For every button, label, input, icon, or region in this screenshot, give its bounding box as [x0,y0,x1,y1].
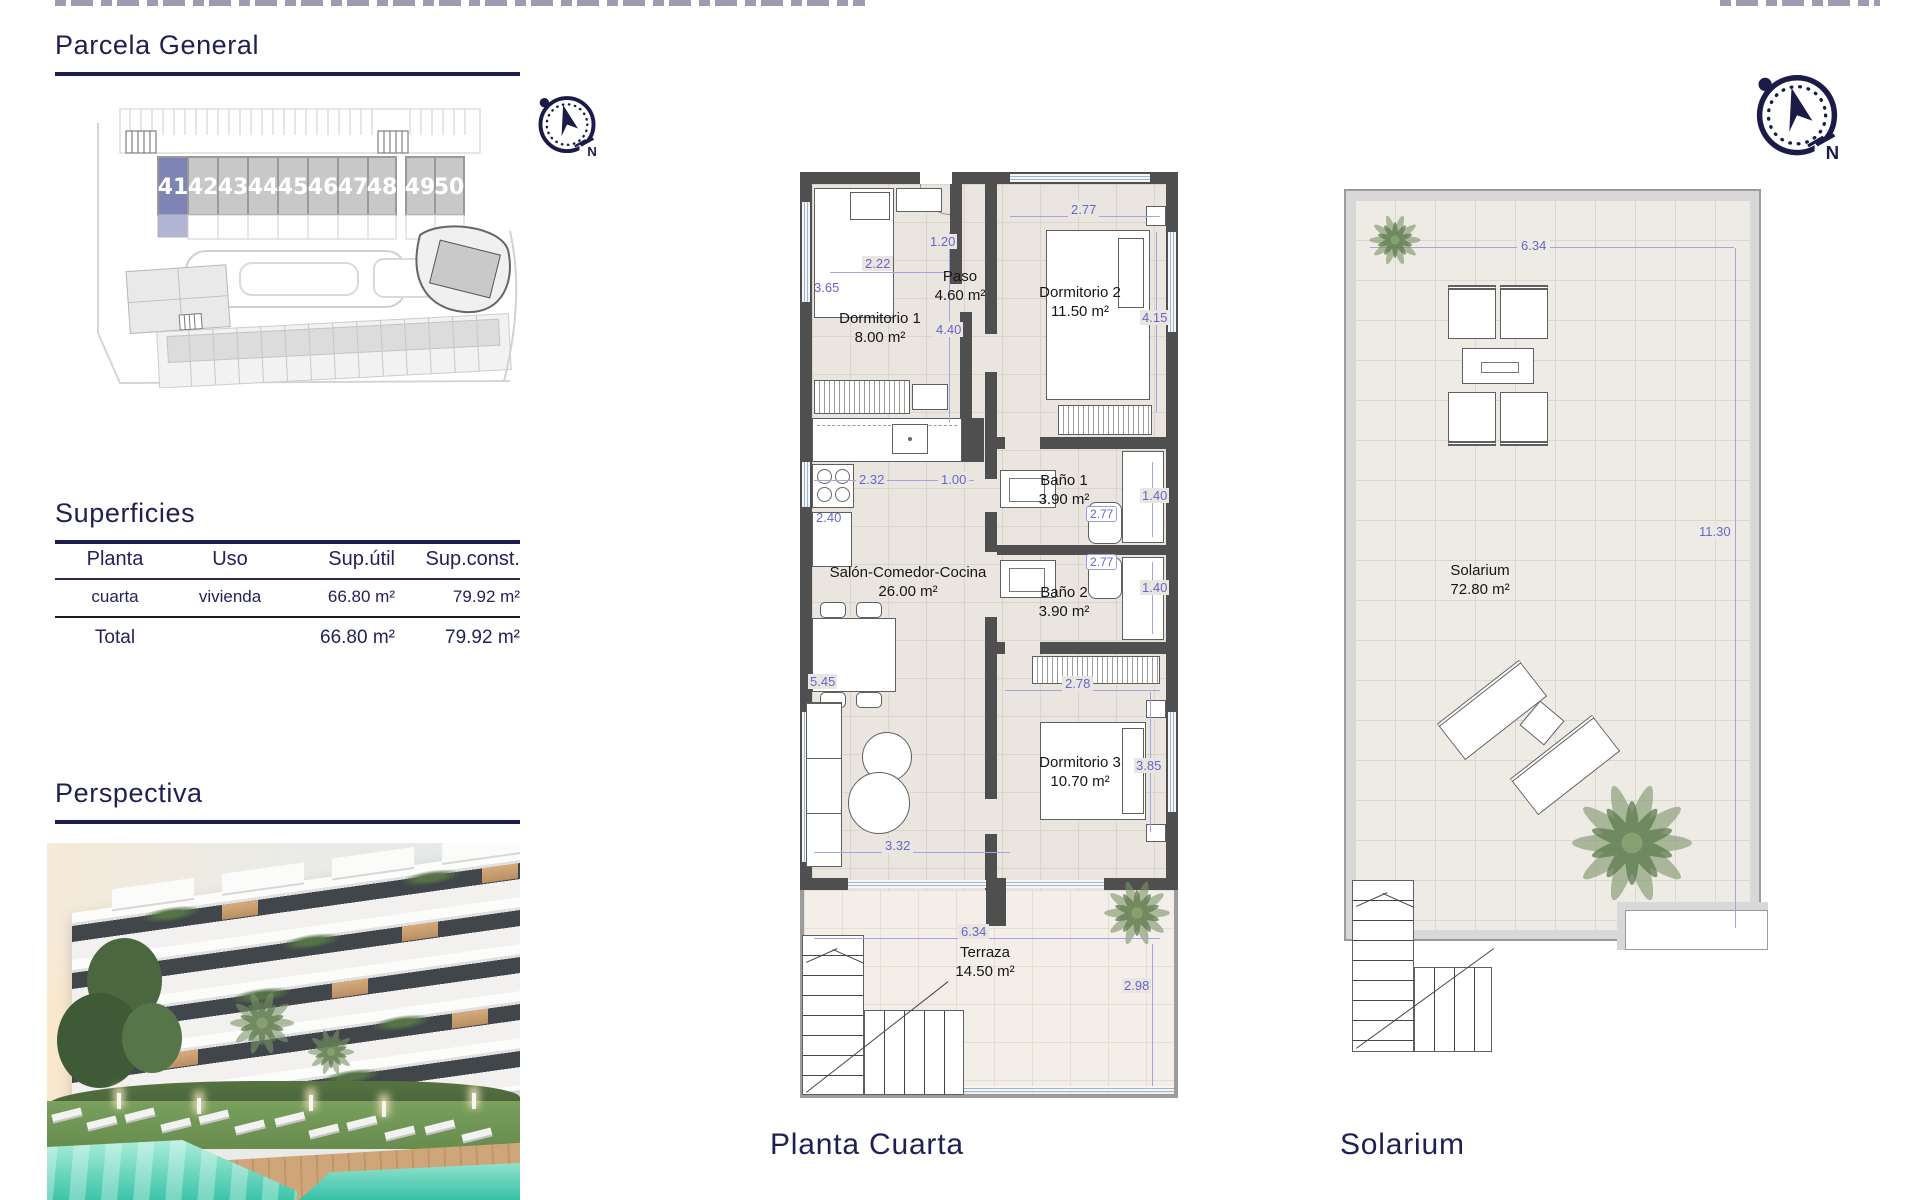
dim-bano2-w: 2.77 [1086,554,1117,570]
dim-bano2-h: 1.40 [1140,580,1169,595]
sliding-door [848,880,986,888]
cell-uso: vivienda [175,587,285,607]
table-header-row: Planta Uso Sup.útil Sup.const. [55,548,520,571]
total-sup-const: 79.92 m² [395,627,520,649]
dim-bano1-h: 1.40 [1140,488,1169,503]
unit-number: 47 [338,175,369,200]
dim-salon-h: 5.45 [808,674,837,689]
room-label-bano1: Baño 13.90 m² [1006,472,1122,510]
unit-number: 44 [248,175,279,200]
compass-icon: N [528,84,606,162]
caption-solarium: Solarium [1340,1128,1465,1162]
shelf [896,188,942,212]
title-underline [55,540,520,544]
dim-cocina-w: 2.32 [856,472,887,487]
cell-sup-util: 66.80 m² [285,587,395,607]
nightstand [1146,824,1166,842]
chair [856,602,882,618]
outdoor-chair [1448,285,1496,339]
compass-icon: N [1742,58,1852,168]
sofa [806,702,842,867]
parking-strip [120,109,480,153]
room-label-paso: Paso4.60 m² [918,268,1002,306]
clipped-header-text-right [1720,0,1880,6]
table-total-row: Total 66.80 m² 79.92 m² [55,627,520,649]
plant [1363,208,1427,272]
coffee-table [848,772,910,834]
left-building [126,265,230,334]
garden-lamp [117,1093,121,1109]
unit-numbers: 41 42 43 44 45 46 47 48 49 50 [158,175,465,200]
col-header-sup-const: Sup.const. [395,548,520,571]
room-label-salon: Salón-Comedor-Cocina26.00 m² [808,564,1008,602]
room-label-bano2: Baño 23.90 m² [1006,584,1122,622]
section-title-parcela: Parcela General [55,30,259,61]
dim-solarium-w: 6.34 [1517,238,1550,253]
shelf [912,384,948,410]
dim-salon-w: 3.32 [882,838,913,853]
unit-number: 43 [218,175,249,200]
title-underline [55,72,520,76]
brochure-page: Parcela General 41 [0,0,1920,1200]
room-label-dormitorio3: Dormitorio 310.70 m² [1000,754,1160,792]
wardrobe [1058,405,1152,435]
dim-cocina-gap: 1.00 [938,472,969,487]
garden-lamp [197,1098,201,1114]
chair [820,602,846,618]
col-header-uso: Uso [175,548,285,571]
room-label-dormitorio1: Dormitorio 18.00 m² [805,310,955,348]
col-header-planta: Planta [55,548,175,571]
outdoor-chair [1500,285,1548,339]
palm-tree [222,983,302,1063]
unit-number: 49 [405,175,436,200]
caption-planta-cuarta: Planta Cuarta [770,1128,964,1162]
chair [856,692,882,708]
unit-number: 45 [278,175,309,200]
pillow [850,192,890,220]
stairs [1352,880,1414,1052]
garden-lamp [382,1101,386,1117]
window [802,462,810,507]
floorplan-planta-cuarta: 3.65 2.22 1.20 4.40 2.77 4.15 2.32 1.00 … [800,172,1178,1105]
dim-dorm2-w: 2.77 [1068,202,1099,217]
cell-planta: cuarta [55,587,175,607]
section-title-superficies: Superficies [55,498,195,529]
palm-plant [1096,872,1178,954]
unit-number: 50 [434,175,465,200]
window [1010,174,1150,182]
total-sup-util: 66.80 m² [285,627,395,649]
unit-number: 46 [308,175,339,200]
north-label: N [587,144,597,159]
unit-number: 48 [367,175,398,200]
section-title-perspectiva: Perspectiva [55,778,203,809]
garden-lamp [309,1095,313,1111]
col-header-sup-util: Sup.útil [285,548,395,571]
clipped-header-text [55,0,865,6]
dim-cocina-h: 2.40 [816,510,841,525]
room-label-solarium: Solarium72.80 m² [1400,562,1560,600]
title-underline [55,820,520,824]
palm-plant [1557,768,1707,918]
kitchen-counter [812,418,962,462]
outdoor-chair [1448,392,1496,446]
window [802,202,810,302]
unit-number: 42 [188,175,219,200]
superficies-table: Planta Uso Sup.útil Sup.const. cuarta vi… [55,548,520,649]
dim-dorm1-h: 3.65 [814,280,839,295]
pool-area [417,226,510,312]
site-plan: 41 42 43 44 45 46 47 48 49 50 [90,83,520,388]
wardrobe [1032,656,1160,684]
palm-tree [302,1023,360,1081]
dim-dorm3-w: 2.78 [1062,676,1093,691]
room-label-terraza: Terraza14.50 m² [910,944,1060,982]
outdoor-table [1462,348,1534,384]
nightstand [1146,700,1166,718]
tree [122,1003,182,1073]
shower [1122,557,1164,640]
dim-paso-w: 1.20 [928,234,957,249]
dim-solarium-h: 11.30 [1697,524,1733,539]
wardrobe [814,380,910,414]
total-label: Total [55,627,175,649]
solarium-plan: 6.34 11.30 Solarium72.80 m² [1345,190,1760,1105]
sink [892,424,928,454]
table-divider [55,578,520,580]
unit-number: 41 [158,175,189,200]
stairs [864,1010,964,1095]
outdoor-chair [1500,392,1548,446]
stairs [1414,967,1492,1052]
table-divider-strong [55,616,520,618]
perspective-render [47,843,520,1200]
room-label-dormitorio2: Dormitorio 211.50 m² [1000,284,1160,322]
dim-dorm1-w: 2.22 [862,256,893,271]
garden-lamp [472,1093,476,1109]
table-data-row: cuarta vivienda 66.80 m² 79.92 m² [55,587,520,607]
unit-41-terrace [158,215,188,237]
north-label: N [1826,142,1840,163]
dim-terraza-w: 6.34 [958,924,989,939]
window [1168,712,1176,812]
cell-sup-const: 79.92 m² [395,587,520,607]
window [1006,880,1104,888]
dim-terraza-h: 2.98 [1122,978,1151,993]
